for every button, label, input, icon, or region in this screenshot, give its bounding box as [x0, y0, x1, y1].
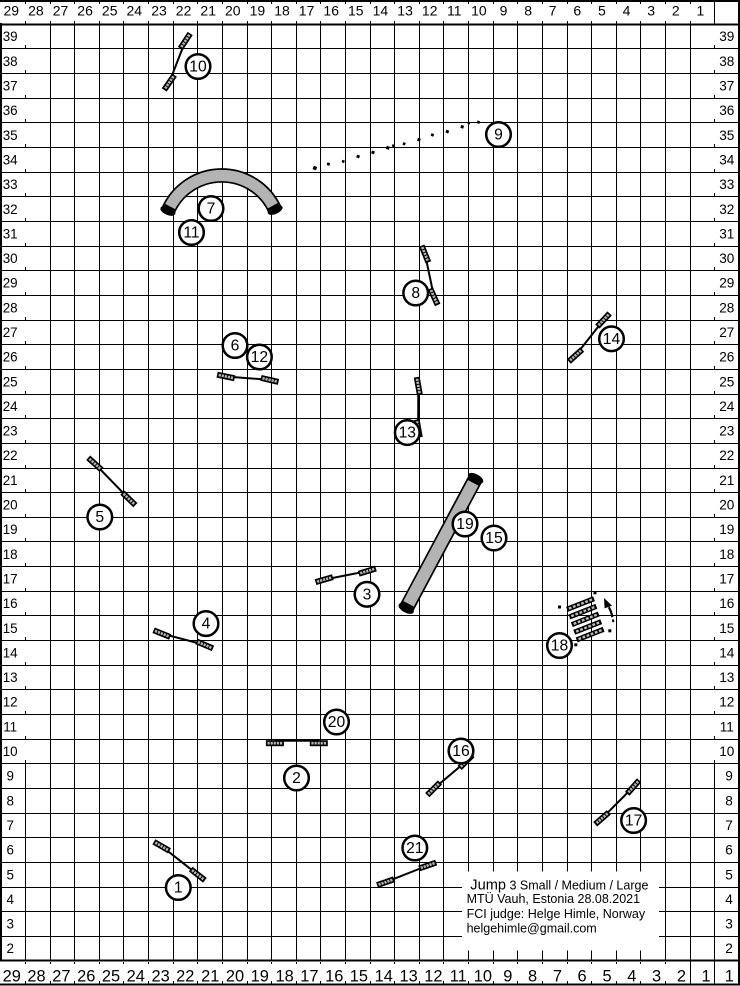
svg-text:25: 25: [102, 967, 120, 985]
svg-text:33: 33: [3, 177, 18, 192]
svg-text:15: 15: [485, 530, 503, 547]
svg-text:9: 9: [500, 3, 508, 19]
svg-text:19: 19: [3, 522, 18, 537]
svg-text:21: 21: [406, 840, 423, 857]
svg-text:14: 14: [603, 331, 621, 348]
svg-text:33: 33: [719, 177, 734, 192]
svg-text:22: 22: [176, 3, 192, 19]
svg-text:25: 25: [102, 3, 118, 19]
svg-text:helgehimle@gmail.com: helgehimle@gmail.com: [467, 921, 597, 935]
svg-text:27: 27: [719, 325, 734, 340]
svg-text:35: 35: [3, 128, 18, 143]
svg-text:34: 34: [3, 153, 18, 168]
svg-text:13: 13: [397, 3, 413, 19]
svg-text:26: 26: [3, 350, 18, 365]
svg-text:2: 2: [6, 941, 13, 956]
svg-text:15: 15: [3, 621, 18, 636]
svg-text:15: 15: [348, 3, 364, 19]
svg-text:21: 21: [200, 3, 216, 19]
svg-text:28: 28: [719, 300, 734, 315]
svg-text:16: 16: [719, 596, 734, 611]
svg-text:4: 4: [725, 892, 733, 907]
svg-text:4: 4: [627, 967, 636, 985]
svg-text:23: 23: [719, 424, 734, 439]
svg-text:12: 12: [251, 349, 268, 366]
svg-text:2: 2: [292, 770, 301, 787]
svg-text:20: 20: [719, 498, 735, 513]
svg-text:1: 1: [725, 967, 734, 985]
svg-text:6: 6: [573, 3, 581, 19]
svg-text:2: 2: [677, 967, 686, 985]
svg-text:38: 38: [719, 54, 734, 69]
svg-text:27: 27: [52, 967, 70, 985]
svg-text:39: 39: [719, 29, 734, 44]
svg-text:9: 9: [503, 967, 512, 985]
svg-text:26: 26: [719, 350, 734, 365]
svg-text:30: 30: [719, 251, 735, 266]
svg-text:15: 15: [719, 621, 734, 636]
svg-text:22: 22: [3, 448, 18, 463]
svg-text:8: 8: [6, 793, 13, 808]
svg-text:24: 24: [127, 3, 143, 19]
svg-text:4: 4: [623, 3, 631, 19]
svg-text:17: 17: [300, 967, 318, 985]
svg-text:6: 6: [6, 843, 13, 858]
svg-text:27: 27: [53, 3, 69, 19]
svg-text:14: 14: [375, 967, 393, 985]
svg-text:37: 37: [719, 79, 734, 94]
svg-text:12: 12: [422, 3, 438, 19]
svg-text:16: 16: [323, 3, 339, 19]
svg-text:25: 25: [719, 374, 734, 389]
svg-text:7: 7: [207, 201, 216, 218]
svg-text:4: 4: [202, 616, 211, 633]
svg-text:3: 3: [647, 3, 655, 19]
svg-text:10: 10: [719, 744, 735, 759]
svg-text:30: 30: [3, 251, 18, 266]
svg-text:6: 6: [231, 338, 240, 355]
svg-text:11: 11: [183, 225, 199, 242]
svg-text:22: 22: [719, 448, 734, 463]
svg-text:20: 20: [225, 3, 241, 19]
svg-text:14: 14: [373, 3, 389, 19]
svg-text:28: 28: [3, 300, 18, 315]
svg-text:7: 7: [549, 3, 557, 19]
svg-text:6: 6: [725, 843, 733, 858]
svg-text:19: 19: [250, 3, 266, 19]
svg-text:20: 20: [328, 714, 346, 731]
svg-text:34: 34: [719, 153, 735, 168]
svg-text:28: 28: [27, 967, 45, 985]
svg-text:22: 22: [176, 967, 194, 985]
svg-text:7: 7: [6, 818, 13, 833]
svg-text:5: 5: [602, 967, 611, 985]
svg-text:10: 10: [471, 3, 487, 19]
svg-text:2: 2: [725, 941, 733, 956]
svg-text:24: 24: [3, 399, 18, 414]
svg-text:18: 18: [274, 3, 290, 19]
svg-text:9: 9: [494, 127, 503, 144]
svg-text:7: 7: [725, 818, 733, 833]
svg-text:29: 29: [3, 967, 21, 985]
svg-text:7: 7: [553, 967, 562, 985]
svg-text:13: 13: [3, 670, 18, 685]
svg-text:32: 32: [3, 202, 18, 217]
svg-text:25: 25: [3, 374, 18, 389]
svg-text:17: 17: [299, 3, 315, 19]
svg-text:20: 20: [3, 498, 18, 513]
svg-text:3: 3: [652, 967, 661, 985]
svg-text:5: 5: [95, 509, 104, 526]
svg-text:21: 21: [719, 473, 734, 488]
svg-text:36: 36: [719, 103, 734, 118]
svg-text:18: 18: [719, 547, 734, 562]
svg-text:17: 17: [719, 572, 734, 587]
svg-text:21: 21: [201, 967, 219, 985]
svg-text:29: 29: [4, 3, 20, 19]
svg-text:37: 37: [3, 79, 18, 94]
svg-text:26: 26: [77, 967, 95, 985]
svg-text:12: 12: [3, 695, 18, 710]
svg-text:28: 28: [28, 3, 44, 19]
svg-text:8: 8: [725, 793, 733, 808]
svg-text:13: 13: [719, 670, 734, 685]
svg-text:2: 2: [672, 3, 680, 19]
svg-text:20: 20: [226, 967, 244, 985]
svg-text:10: 10: [3, 744, 18, 759]
svg-text:18: 18: [275, 967, 293, 985]
svg-text:6: 6: [578, 967, 587, 985]
svg-text:1: 1: [702, 967, 711, 985]
svg-text:11: 11: [447, 3, 462, 19]
svg-text:3: 3: [363, 586, 372, 603]
svg-text:3: 3: [6, 917, 13, 932]
svg-text:26: 26: [77, 3, 93, 19]
svg-text:5: 5: [6, 867, 13, 882]
svg-text:10: 10: [189, 59, 207, 76]
svg-text:10: 10: [474, 967, 492, 985]
svg-text:12: 12: [424, 967, 442, 985]
svg-text:16: 16: [452, 743, 470, 760]
svg-text:5: 5: [725, 867, 733, 882]
svg-text:FCI judge: Helge Himle, Norway: FCI judge: Helge Himle, Norway: [467, 907, 646, 921]
svg-text:11: 11: [3, 719, 17, 734]
svg-text:29: 29: [3, 276, 18, 291]
svg-text:32: 32: [719, 202, 734, 217]
svg-text:31: 31: [3, 226, 18, 241]
svg-text:16: 16: [3, 596, 18, 611]
svg-text:36: 36: [3, 103, 18, 118]
svg-text:15: 15: [350, 967, 368, 985]
svg-text:14: 14: [3, 645, 18, 660]
svg-text:4: 4: [6, 892, 14, 907]
svg-text:39: 39: [3, 29, 18, 44]
svg-text:23: 23: [3, 424, 18, 439]
svg-text:Jump 3 Small / Medium / Large: Jump 3 Small / Medium / Large: [470, 877, 648, 893]
svg-text:5: 5: [598, 3, 606, 19]
svg-text:11: 11: [720, 719, 734, 734]
svg-text:13: 13: [399, 967, 417, 985]
svg-text:31: 31: [719, 226, 734, 241]
svg-text:17: 17: [625, 813, 642, 830]
svg-text:27: 27: [3, 325, 18, 340]
svg-text:19: 19: [456, 516, 473, 533]
svg-text:19: 19: [251, 967, 269, 985]
svg-text:35: 35: [719, 128, 734, 143]
svg-text:3: 3: [725, 917, 733, 932]
svg-text:14: 14: [719, 645, 735, 660]
svg-text:19: 19: [719, 522, 734, 537]
svg-text:MTÜ Vauh, Estonia 28.08.2021: MTÜ Vauh, Estonia 28.08.2021: [467, 892, 641, 906]
svg-text:18: 18: [551, 638, 569, 655]
svg-text:13: 13: [399, 425, 417, 442]
svg-text:8: 8: [528, 967, 537, 985]
svg-text:38: 38: [3, 54, 18, 69]
svg-text:24: 24: [127, 967, 145, 985]
svg-text:8: 8: [524, 3, 532, 19]
svg-text:12: 12: [719, 695, 734, 710]
svg-text:16: 16: [325, 967, 343, 985]
svg-text:21: 21: [3, 473, 18, 488]
svg-text:23: 23: [151, 3, 167, 19]
svg-text:8: 8: [411, 285, 420, 302]
svg-text:1: 1: [174, 880, 183, 897]
svg-text:24: 24: [719, 399, 735, 414]
svg-text:9: 9: [6, 769, 13, 784]
svg-text:18: 18: [3, 547, 18, 562]
svg-text:9: 9: [725, 769, 733, 784]
svg-text:23: 23: [151, 967, 169, 985]
svg-text:1: 1: [697, 3, 705, 19]
svg-text:11: 11: [450, 967, 467, 985]
svg-text:17: 17: [3, 572, 18, 587]
svg-text:29: 29: [719, 276, 734, 291]
